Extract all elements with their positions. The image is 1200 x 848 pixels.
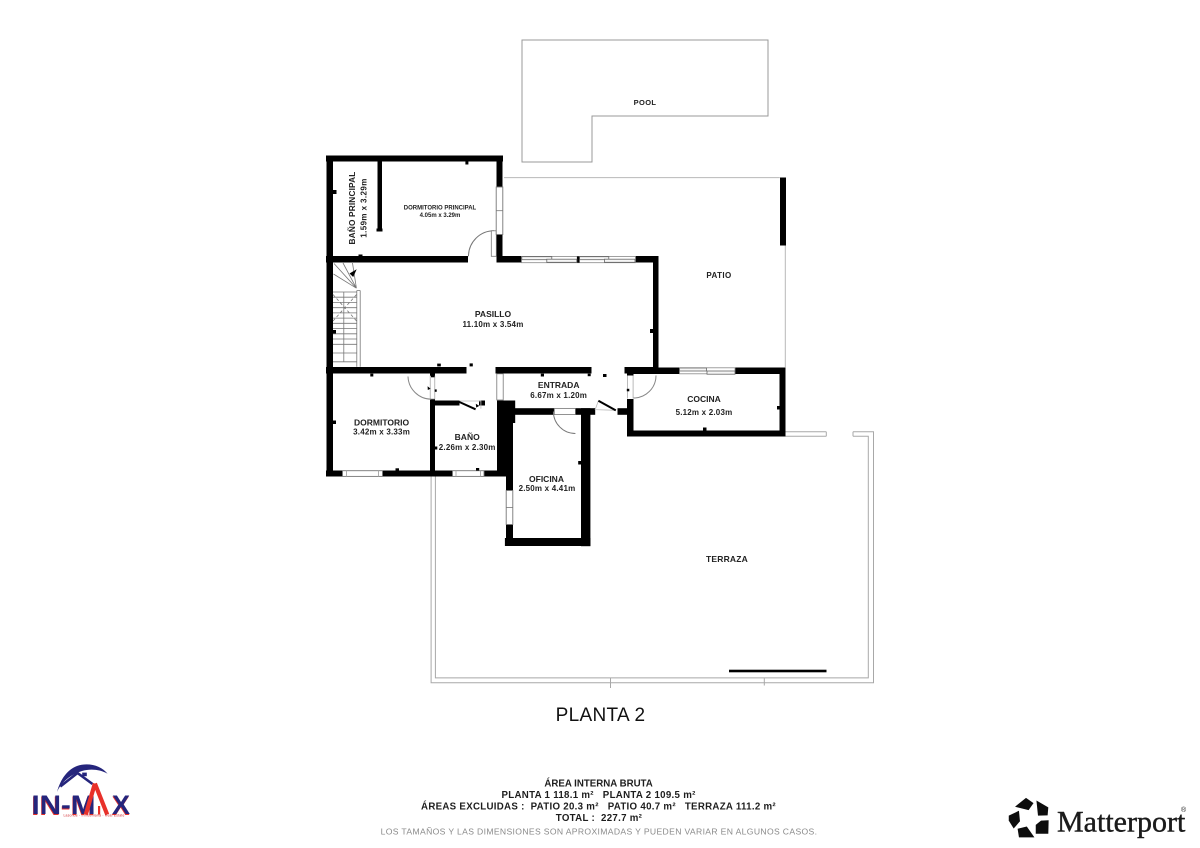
- svg-text:PASILLO: PASILLO: [475, 309, 512, 319]
- svg-text:1.59m x 3.29m: 1.59m x 3.29m: [360, 178, 369, 237]
- svg-text:DORMITORIO PRINCIPAL: DORMITORIO PRINCIPAL: [404, 206, 477, 212]
- svg-text:TERRAZA: TERRAZA: [706, 554, 748, 564]
- svg-text:OFICINA: OFICINA: [529, 474, 564, 484]
- svg-text:POOL: POOL: [634, 98, 657, 107]
- svg-text:3.42m x 3.33m: 3.42m x 3.33m: [353, 427, 410, 436]
- svg-text:ENTRADA: ENTRADA: [538, 380, 580, 390]
- svg-text:TOTAL : 227.7 m²: TOTAL : 227.7 m²: [556, 813, 643, 824]
- svg-text:5.12m x 2.03m: 5.12m x 2.03m: [676, 408, 733, 417]
- svg-text:4.05m x 3.29m: 4.05m x 3.29m: [420, 213, 461, 219]
- svg-text:BAÑO: BAÑO: [455, 432, 480, 442]
- svg-text:PLANTA 1 118.1 m² PLANTA 2 1: PLANTA 1 118.1 m² PLANTA 2 109.5 m²: [502, 790, 697, 801]
- svg-text:COCINA: COCINA: [687, 394, 721, 404]
- svg-text:Matterport: Matterport: [1057, 806, 1186, 839]
- svg-text:2.26m x 2.30m: 2.26m x 2.30m: [439, 443, 496, 452]
- svg-text:®: ®: [1181, 806, 1187, 814]
- svg-text:2.50m x 4.41m: 2.50m x 4.41m: [519, 484, 576, 493]
- svg-text:6.67m x 1.20m: 6.67m x 1.20m: [530, 391, 587, 400]
- svg-text:Lasonde - Inmobiliaria - Real: Lasonde - Inmobiliaria - Real Estate: [63, 813, 124, 817]
- svg-text:PATIO: PATIO: [706, 271, 731, 280]
- svg-text:ÁREA INTERNA BRUTA: ÁREA INTERNA BRUTA: [544, 779, 652, 790]
- svg-text:DORMITORIO: DORMITORIO: [354, 417, 409, 427]
- svg-text:LOS TAMAÑOS Y LAS DIMENSIONES: LOS TAMAÑOS Y LAS DIMENSIONES SON APROXI…: [381, 826, 818, 836]
- svg-text:PLANTA 2: PLANTA 2: [556, 705, 646, 726]
- svg-text:BAÑO PRINCIPAL: BAÑO PRINCIPAL: [347, 172, 357, 245]
- svg-text:11.10m x 3.54m: 11.10m x 3.54m: [462, 320, 523, 329]
- svg-text:ÁREAS EXCLUIDAS : PATIO 20.3: ÁREAS EXCLUIDAS : PATIO 20.3 m² PATIO 40…: [421, 802, 776, 813]
